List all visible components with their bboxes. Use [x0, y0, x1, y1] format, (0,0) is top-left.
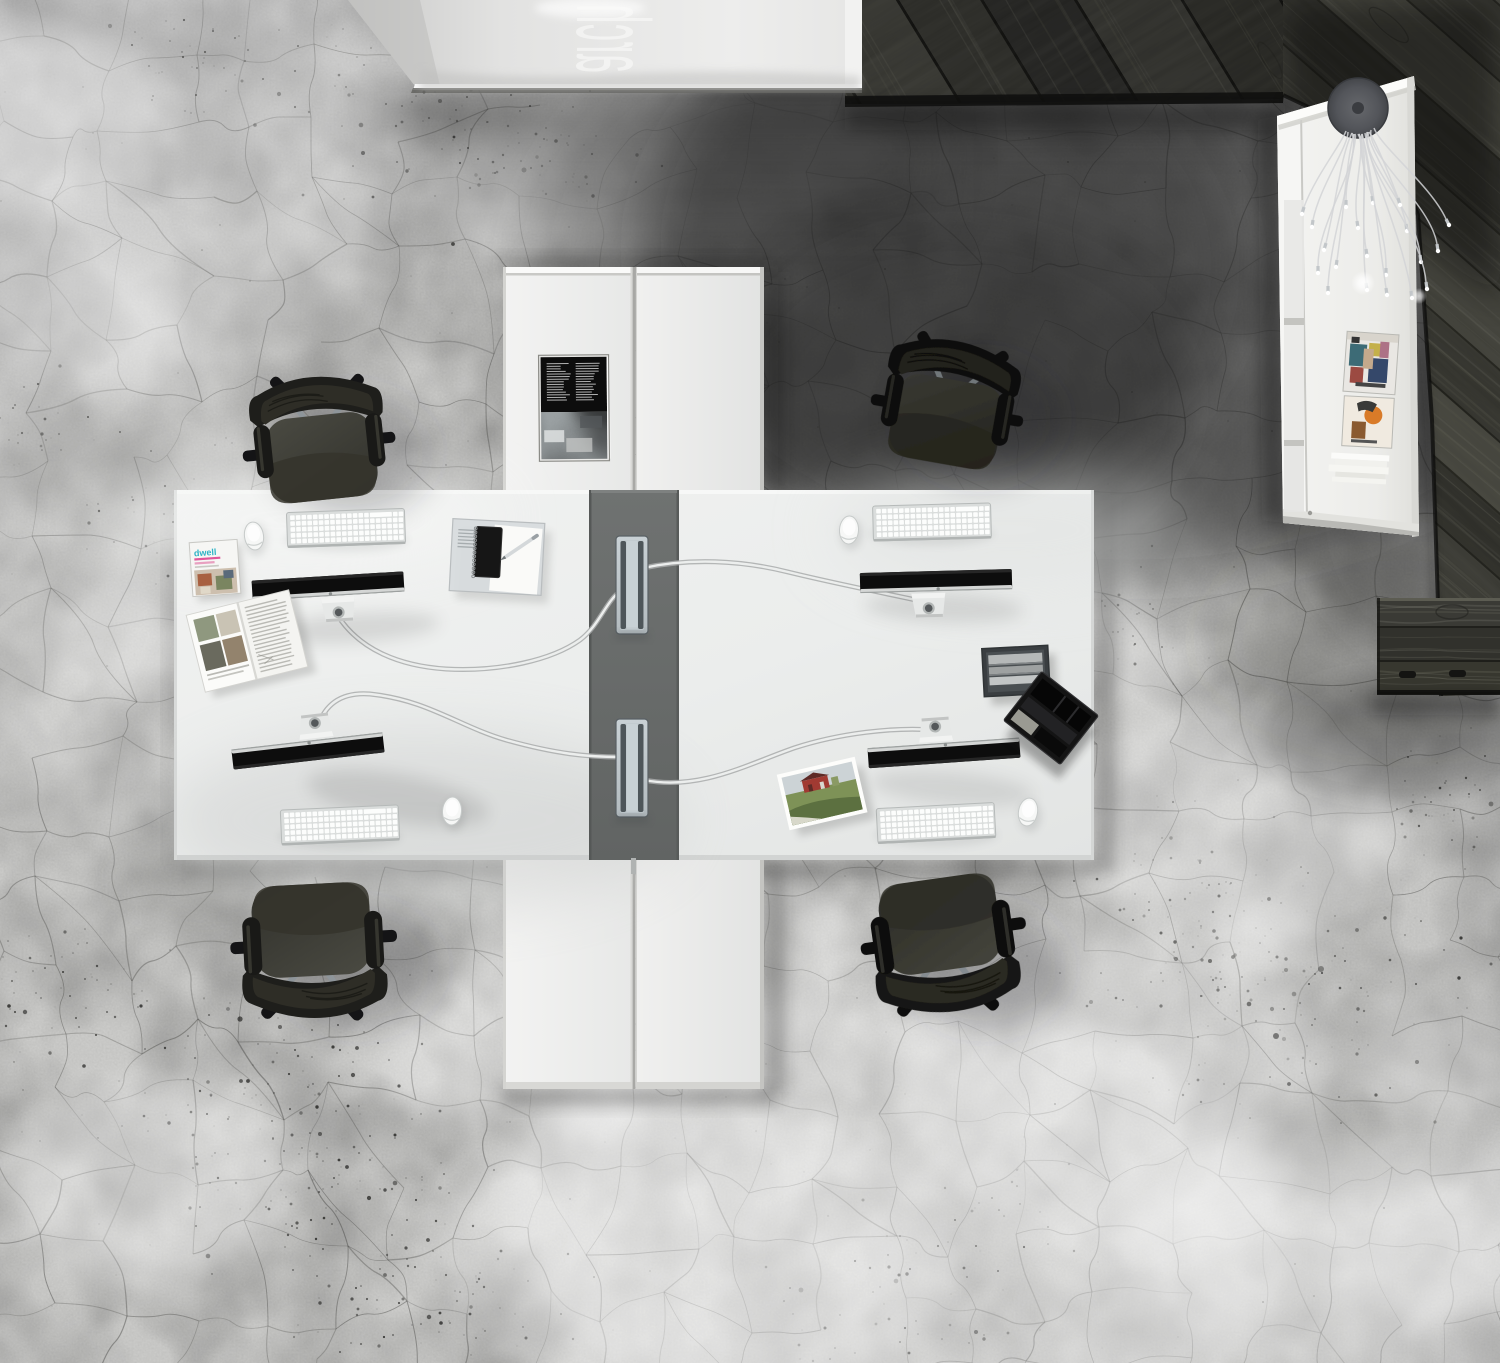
- svg-text:dwell: dwell: [194, 547, 217, 559]
- svg-text:arch: arch: [554, 4, 669, 73]
